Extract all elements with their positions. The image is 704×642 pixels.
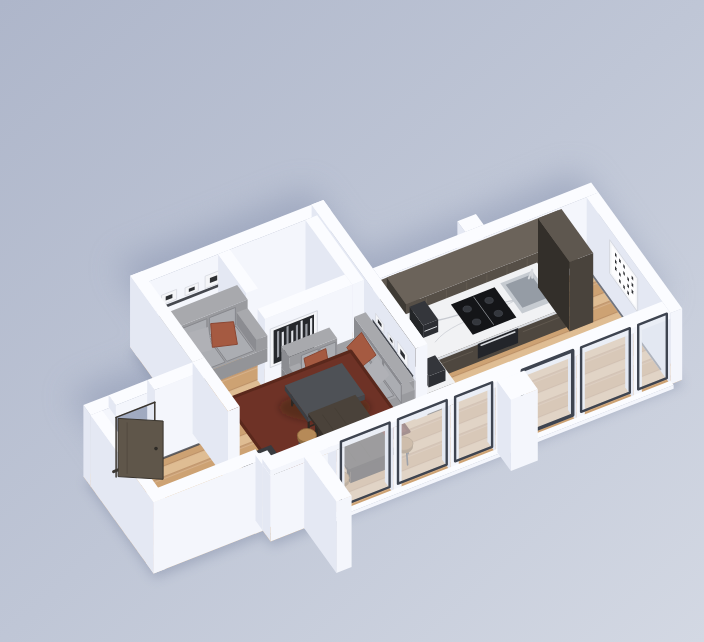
window-panel xyxy=(455,382,492,461)
entry-door xyxy=(118,418,163,479)
render-canvas: 3D isometric render of a small studio ap… xyxy=(0,0,704,642)
floorplan-render xyxy=(0,0,704,642)
window-panel xyxy=(638,314,667,390)
pillow-rust-left xyxy=(211,322,238,348)
